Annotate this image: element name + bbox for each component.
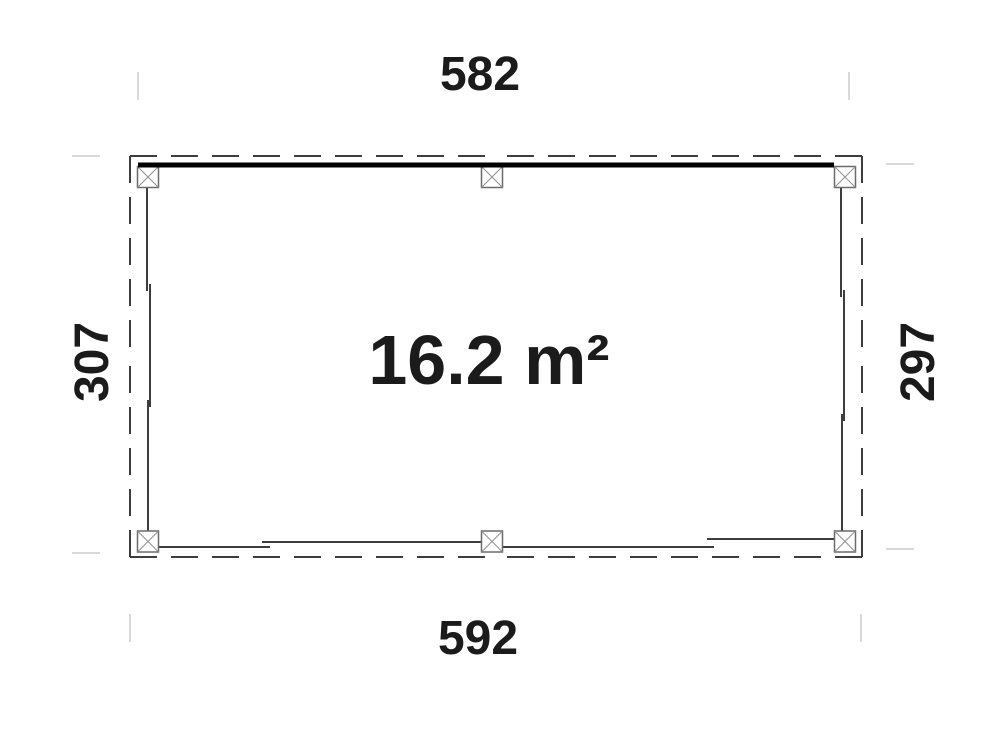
dimension-label-left: 307 <box>66 322 119 402</box>
dimension-label-bottom: 592 <box>438 612 518 665</box>
post-marker <box>835 531 856 552</box>
post-marker <box>482 531 503 552</box>
dimension-label-top: 582 <box>440 48 520 101</box>
post-marker <box>835 167 856 188</box>
post-marker <box>138 531 159 552</box>
dimension-label-right: 297 <box>892 322 945 402</box>
floor-plan-page: 582 592 307 297 16.2 m² <box>0 0 1000 750</box>
post-marker <box>482 167 503 188</box>
post-marker <box>138 167 159 188</box>
floor-plan-drawing: 582 592 307 297 16.2 m² <box>0 0 1000 750</box>
area-label: 16.2 m² <box>368 321 609 399</box>
